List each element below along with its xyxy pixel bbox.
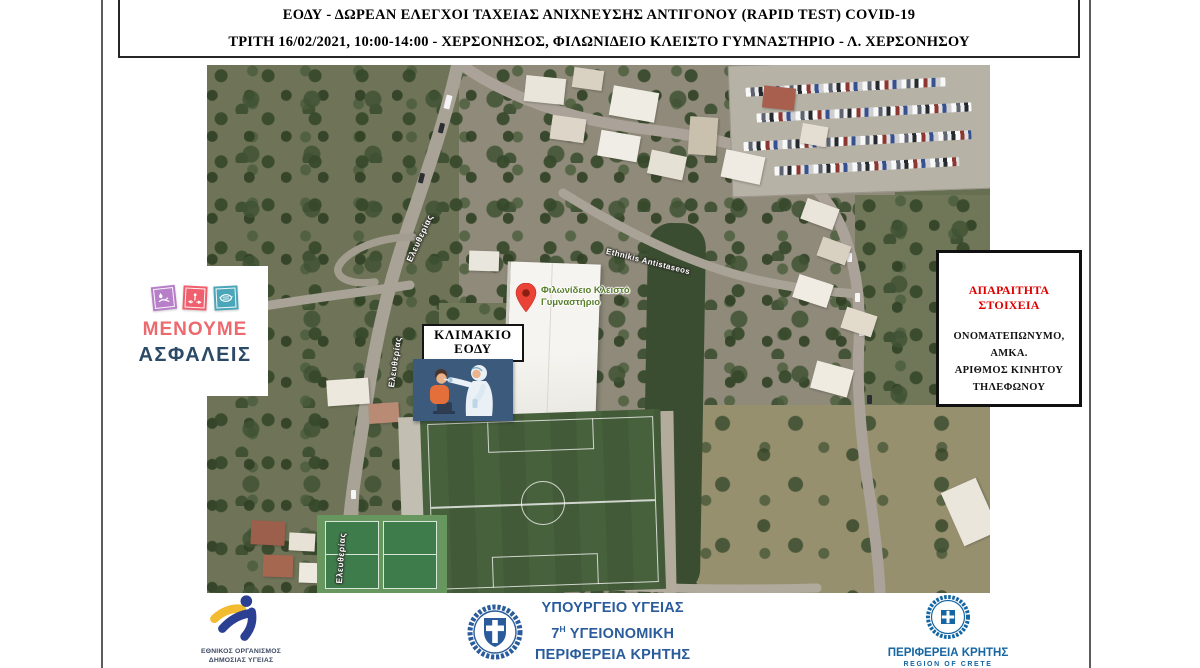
menoume-line2: ΑΣΦΑΛΕΙΣ: [122, 344, 268, 367]
building: [609, 85, 660, 123]
right-page-edge: [1089, 0, 1091, 668]
building-red-roof: [368, 402, 399, 424]
required-info-line: ΟΝΟΜΑΤΕΠΩΝΥΜΟ,: [939, 328, 1079, 345]
building: [647, 150, 687, 181]
building: [524, 75, 566, 105]
ministry-line3: ΠΕΡΙΦΕΡΕΙΑ ΚΡΗΤΗΣ: [535, 645, 690, 666]
ministry-text: ΥΠΟΥΡΓΕΙΟ ΥΓΕΙΑΣ 7Η ΥΓΕΙΟΝΟΜΙΚΗ ΠΕΡΙΦΕΡΕ…: [535, 598, 690, 666]
swab-illustration: [413, 359, 513, 421]
header-box: ΕΟΔΥ - ΔΩΡΕΑΝ ΕΛΕΓΧΟΙ ΤΑΧΕΙΑΣ ΑΝΙΧΝΕΥΣΗΣ…: [118, 0, 1080, 58]
building-red-roof: [250, 520, 285, 546]
crete-line2: REGION OF CRETE: [886, 660, 1010, 668]
required-info-lines: ΟΝΟΜΑΤΕΠΩΝΥΜΟ, ΑΜΚΑ. ΑΡΙΘΜΟΣ ΚΙΝΗΤΟΥ ΤΗΛ…: [939, 328, 1079, 396]
building: [597, 130, 641, 163]
ministry-logo: ΥΠΟΥΡΓΕΙΟ ΥΓΕΙΑΣ 7Η ΥΓΕΙΟΝΟΜΙΚΗ ΠΕΡΙΦΕΡΕ…: [466, 598, 690, 666]
ministry-line2: 7Η ΥΓΕΙΟΝΟΜΙΚΗ: [535, 619, 690, 645]
klimakio-line1: ΚΛΙΜΑΚΙΟ: [424, 328, 522, 342]
building: [799, 123, 828, 147]
header-subtitle: ΤΡΙΤΗ 16/02/2021, 10:00-14:00 - ΧΕΡΣΟΝΗΣ…: [120, 34, 1078, 51]
building: [941, 478, 990, 546]
crete-emblem-icon: [925, 594, 971, 640]
ministry-line1: ΥΠΟΥΡΓΕΙΟ ΥΓΕΙΑΣ: [535, 598, 690, 619]
eody-logo: ΕΘΝΙΚΟΣ ΟΡΓΑΝΙΣΜΟΣ ΔΗΜΟΣΙΑΣ ΥΓΕΙΑΣ: [190, 594, 292, 665]
menoume-square-handwash: [151, 285, 177, 311]
klimakio-line2: ΕΟΔΥ: [424, 342, 522, 356]
menoume-squares: [122, 286, 268, 310]
crete-logo: ΠΕΡΙΦΕΡΕΙΑ ΚΡΗΤΗΣ REGION OF CRETE: [886, 594, 1010, 668]
building: [326, 378, 370, 407]
building: [721, 149, 766, 185]
building: [800, 198, 839, 230]
building: [572, 67, 604, 91]
building: [289, 532, 316, 551]
handwash-icon: [156, 290, 171, 305]
menoume-asfaleis-logo: ΜΕΝΟΥΜΕ ΑΣΦΑΛΕΙΣ: [122, 266, 268, 396]
tennis-court: [325, 521, 379, 589]
distance-icon: [188, 291, 203, 306]
greek-emblem-icon: [466, 603, 524, 661]
tennis-court: [383, 521, 437, 589]
required-info-line: ΤΗΛΕΦΩΝΟΥ: [939, 379, 1079, 396]
location-pin-icon: [515, 283, 537, 313]
eody-figure-icon: [209, 594, 273, 642]
required-info-line: ΑΡΙΘΜΟΣ ΚΙΝΗΤΟΥ: [939, 362, 1079, 379]
building: [840, 307, 877, 338]
building: [816, 236, 851, 265]
football-field: [420, 409, 666, 593]
eody-org-line2: ΔΗΜΟΣΙΑΣ ΥΓΕΙΑΣ: [190, 656, 292, 665]
pin-label-line2: Γυμναστήριο: [541, 297, 630, 309]
swab-illustration-graphic: [413, 359, 513, 421]
menoume-square-distance: [182, 285, 207, 310]
page-canvas: ΕΟΔΥ - ΔΩΡΕΑΝ ΕΛΕΓΧΟΙ ΤΑΧΕΙΑΣ ΑΝΙΧΝΕΥΣΗΣ…: [0, 0, 1200, 668]
klimakio-box: ΚΛΙΜΑΚΙΟ ΕΟΔΥ: [422, 324, 524, 362]
required-info-line: ΑΜΚΑ.: [939, 345, 1079, 362]
satellite-map: Ελευθερίας Ελευθερίας Ελευθερίας Ethniki…: [207, 65, 990, 593]
building: [810, 361, 854, 398]
menoume-line1: ΜΕΝΟΥΜΕ: [122, 319, 268, 341]
building: [688, 116, 719, 156]
building-red-roof: [762, 85, 796, 110]
building: [792, 274, 834, 308]
building: [469, 250, 500, 271]
field-penalty-box-bottom: [492, 553, 599, 588]
menoume-square-mask: [213, 285, 238, 310]
required-info-box: ΑΠΑΡΑΙΤΗΤΑ ΣΤΟΙΧΕΙΑ ΟΝΟΜΑΤΕΠΩΝΥΜΟ, ΑΜΚΑ.…: [936, 250, 1082, 407]
location-pin: [515, 283, 537, 318]
mask-icon: [219, 291, 234, 306]
building: [549, 115, 586, 143]
eody-org-line1: ΕΘΝΙΚΟΣ ΟΡΓΑΝΙΣΜΟΣ: [190, 647, 292, 656]
building-red-roof: [263, 554, 294, 577]
field-penalty-box-top: [487, 418, 594, 453]
header-title: ΕΟΔΥ - ΔΩΡΕΑΝ ΕΛΕΓΧΟΙ ΤΑΧΕΙΑΣ ΑΝΙΧΝΕΥΣΗΣ…: [120, 7, 1078, 24]
required-info-title: ΑΠΑΡΑΙΤΗΤΑ ΣΤΟΙΧΕΙΑ: [939, 283, 1079, 313]
left-page-edge: [101, 0, 103, 668]
crete-line1: ΠΕΡΙΦΕΡΕΙΑ ΚΡΗΤΗΣ: [886, 647, 1010, 660]
pin-label: Φιλωνίδειο Κλειστό Γυμναστήριο: [541, 285, 630, 308]
pin-label-line1: Φιλωνίδειο Κλειστό: [541, 285, 630, 297]
